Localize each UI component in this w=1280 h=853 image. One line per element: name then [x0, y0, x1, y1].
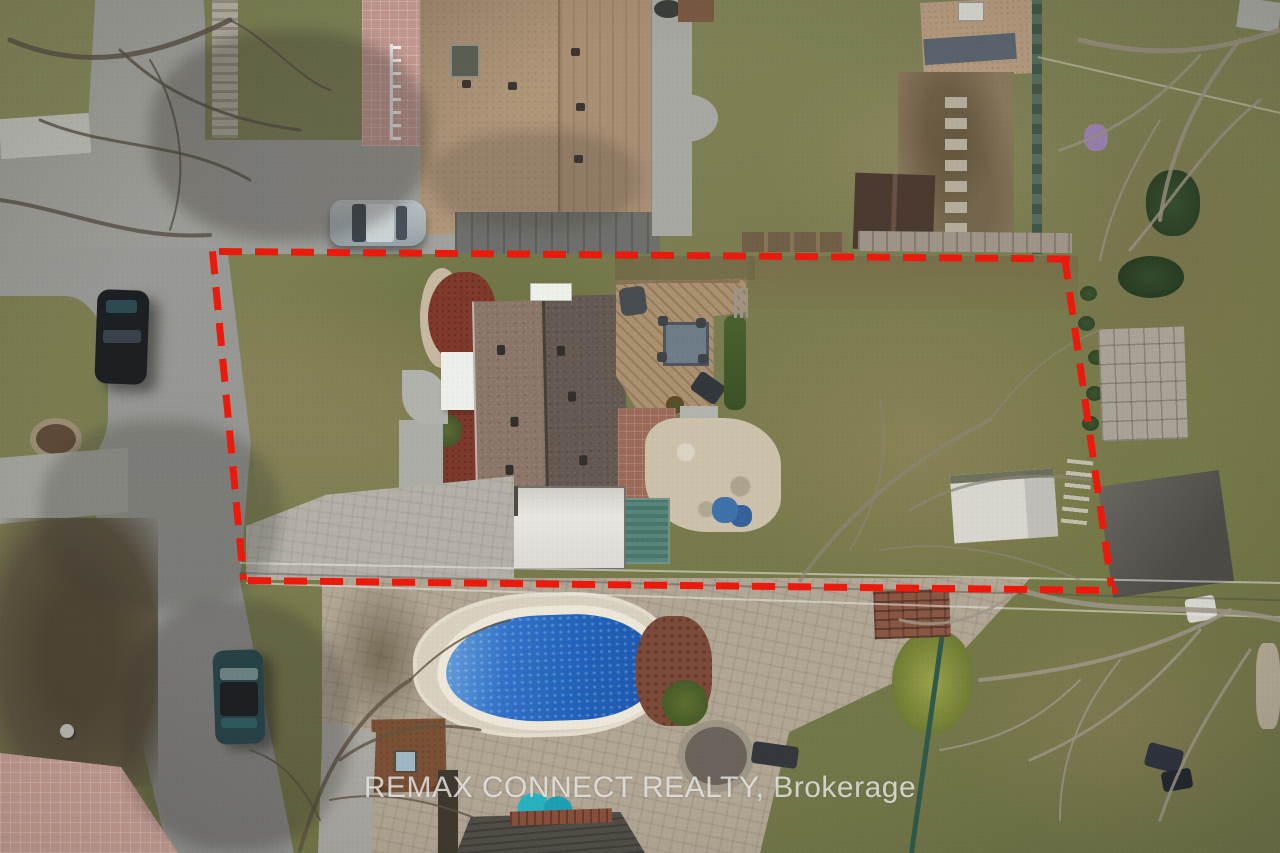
aerial-photo: REMAX CONNECT REALTY, Brokerage	[0, 0, 1280, 853]
vignette	[0, 0, 1280, 853]
brokerage-watermark: REMAX CONNECT REALTY, Brokerage	[364, 771, 916, 805]
